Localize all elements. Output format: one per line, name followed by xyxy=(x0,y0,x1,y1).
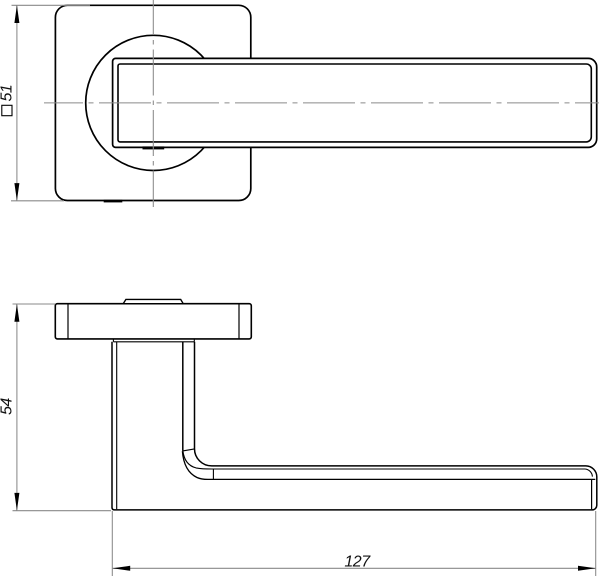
svg-text:127: 127 xyxy=(344,554,371,571)
svg-text:51: 51 xyxy=(0,85,15,102)
svg-text:54: 54 xyxy=(0,398,15,415)
